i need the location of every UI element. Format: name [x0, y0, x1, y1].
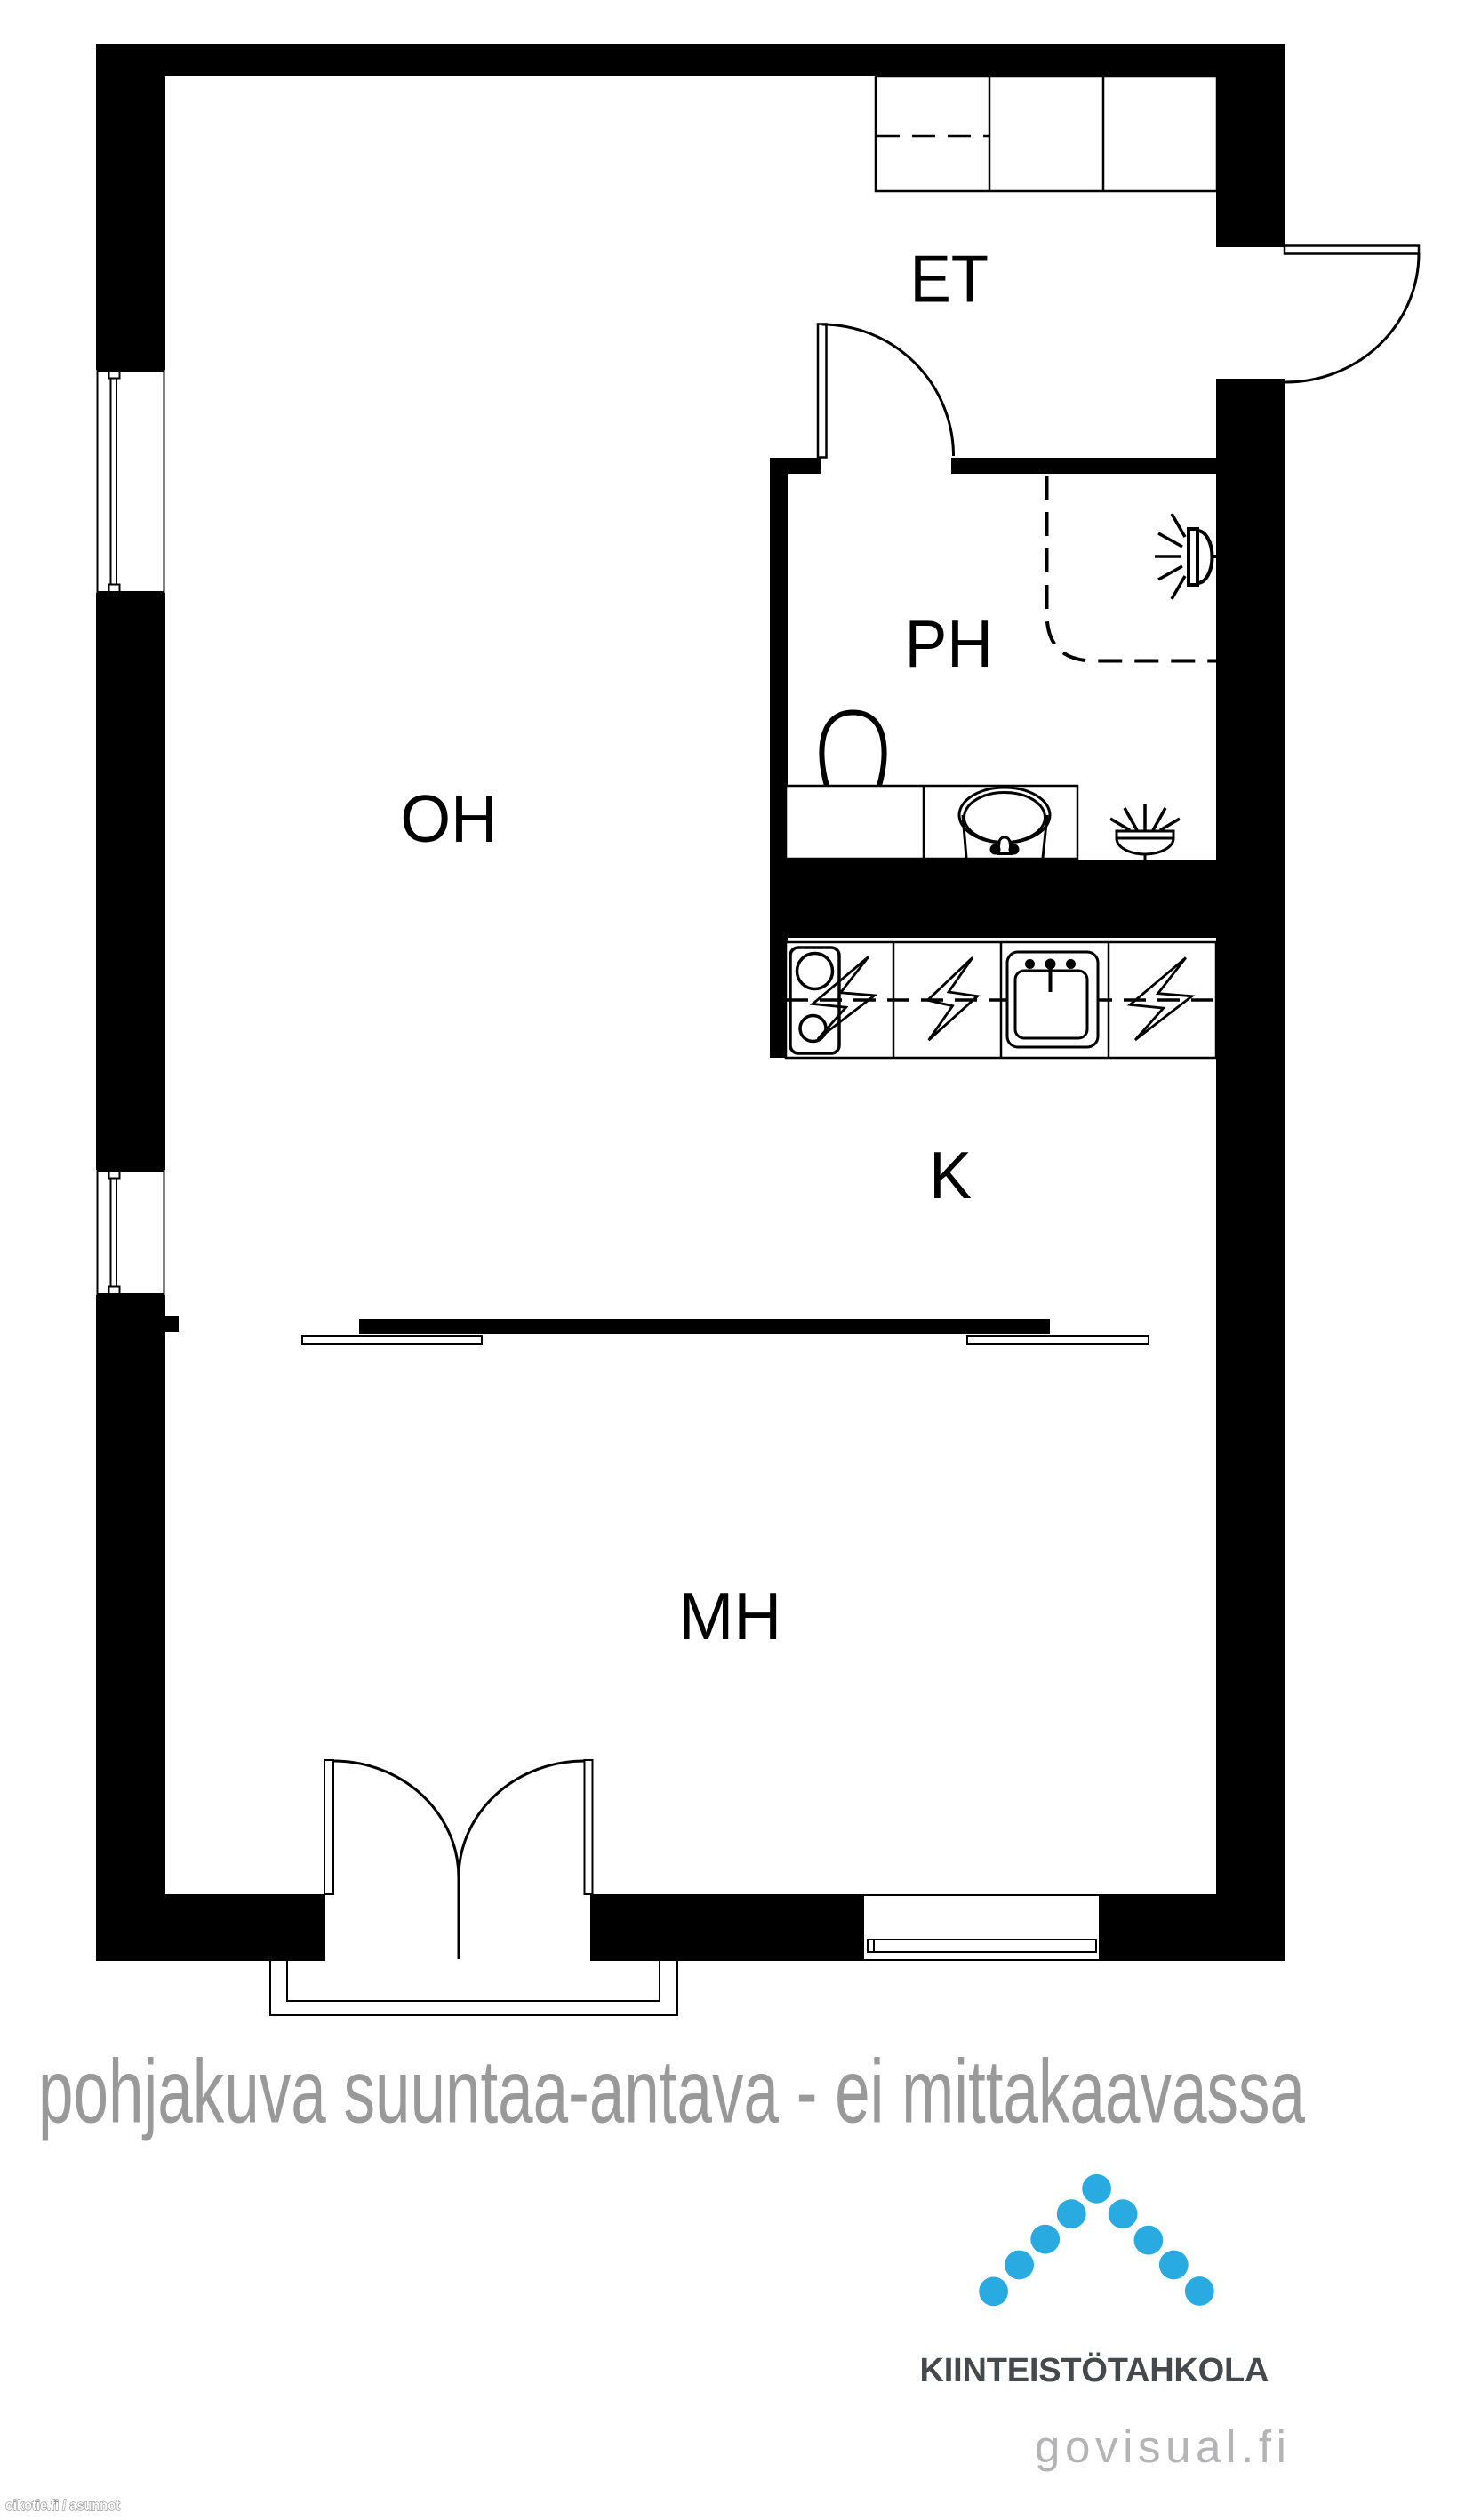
svg-text:govisual.fi: govisual.fi: [1035, 2421, 1286, 2472]
svg-text:oikotie.fi / asunnot: oikotie.fi / asunnot: [5, 2497, 120, 2514]
svg-text:PH: PH: [905, 606, 993, 681]
svg-text:KIINTEISTÖTAHKOLA: KIINTEISTÖTAHKOLA: [920, 2351, 1269, 2389]
svg-text:OH: OH: [400, 781, 497, 856]
svg-text:pohjakuva suuntaa-antava - ei: pohjakuva suuntaa-antava - ei mittakaava…: [38, 2043, 1306, 2142]
svg-text:K: K: [929, 1138, 972, 1212]
svg-text:MH: MH: [678, 1579, 781, 1653]
svg-text:ET: ET: [910, 241, 989, 316]
